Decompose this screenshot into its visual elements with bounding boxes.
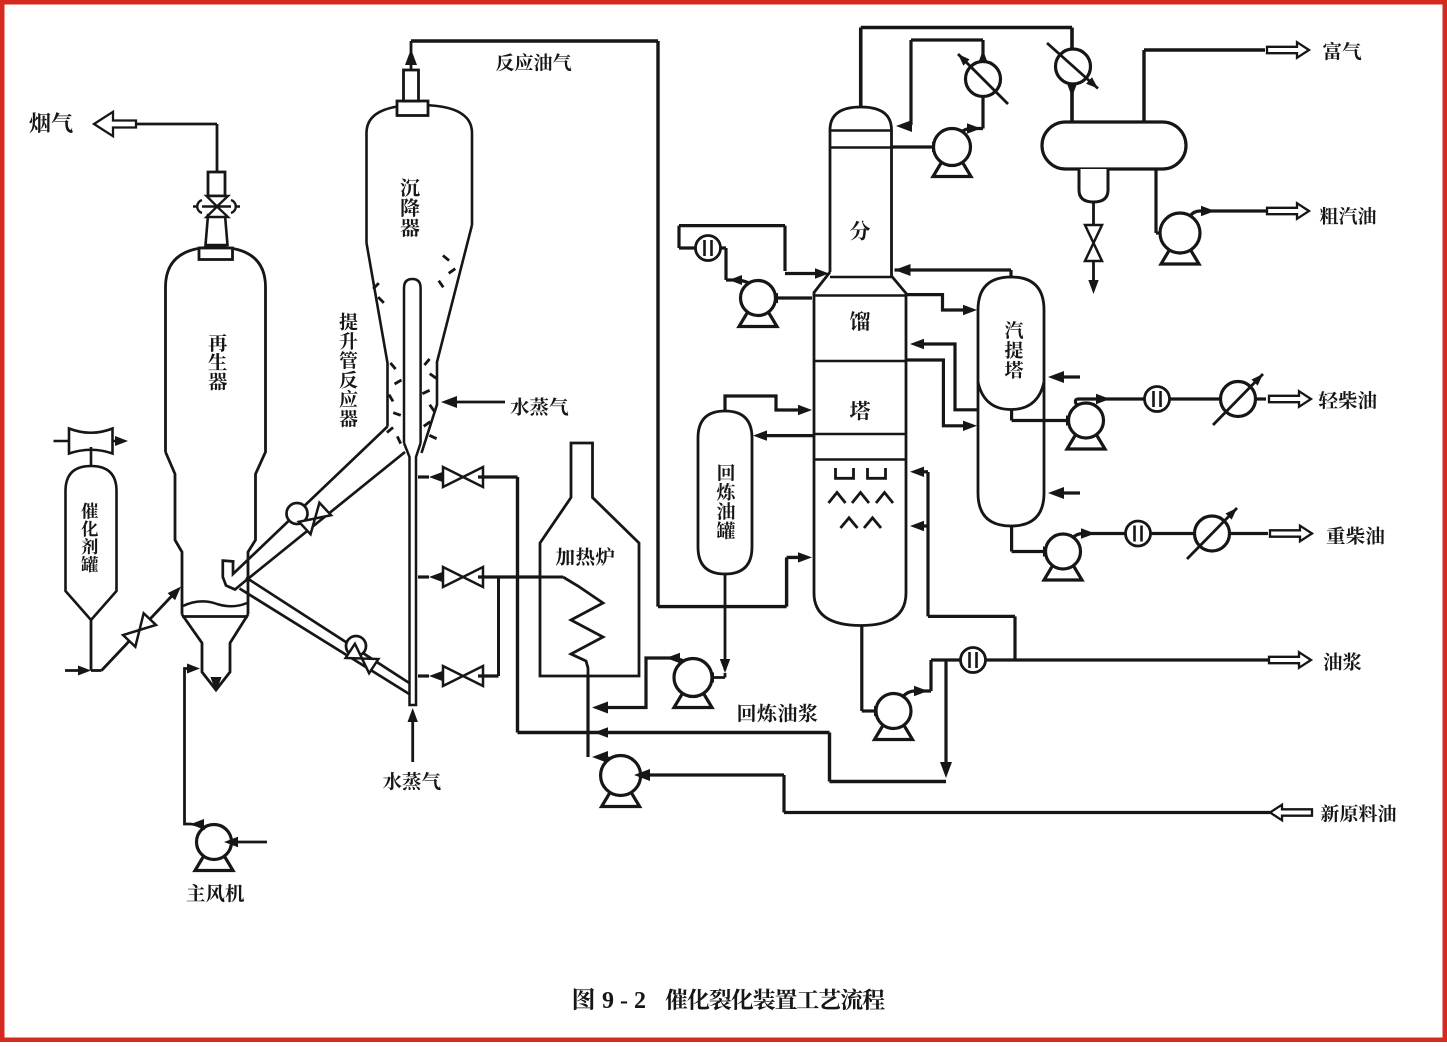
- svg-text:9 - 2: 9 - 2: [602, 988, 646, 1014]
